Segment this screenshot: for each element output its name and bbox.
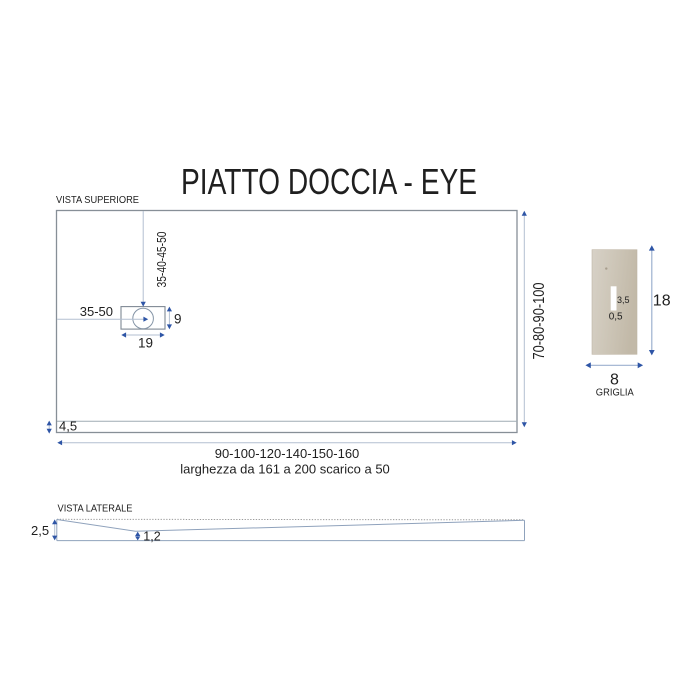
svg-text:VISTA SUPERIORE: VISTA SUPERIORE: [56, 195, 139, 206]
svg-text:35-50: 35-50: [80, 304, 113, 319]
svg-text:19: 19: [138, 336, 153, 351]
svg-text:4,5: 4,5: [59, 419, 77, 434]
svg-text:GRIGLIA: GRIGLIA: [596, 387, 634, 399]
svg-text:70-80-90-100: 70-80-90-100: [531, 282, 548, 359]
svg-text:0,5: 0,5: [609, 312, 623, 323]
svg-text:90-100-120-140-150-160: 90-100-120-140-150-160: [215, 446, 360, 461]
svg-text:35-40-45-50: 35-40-45-50: [154, 232, 169, 288]
svg-text:1,2: 1,2: [143, 529, 160, 543]
svg-text:9: 9: [174, 312, 182, 327]
svg-text:2,5: 2,5: [31, 523, 49, 538]
svg-text:18: 18: [653, 293, 671, 310]
svg-text:larghezza da 161 a 200 scarico: larghezza da 161 a 200 scarico a 50: [180, 462, 390, 477]
svg-text:VISTA LATERALE: VISTA LATERALE: [58, 504, 133, 515]
svg-text:PIATTO DOCCIA - EYE: PIATTO DOCCIA - EYE: [181, 161, 477, 202]
svg-text:3,5: 3,5: [617, 295, 630, 305]
